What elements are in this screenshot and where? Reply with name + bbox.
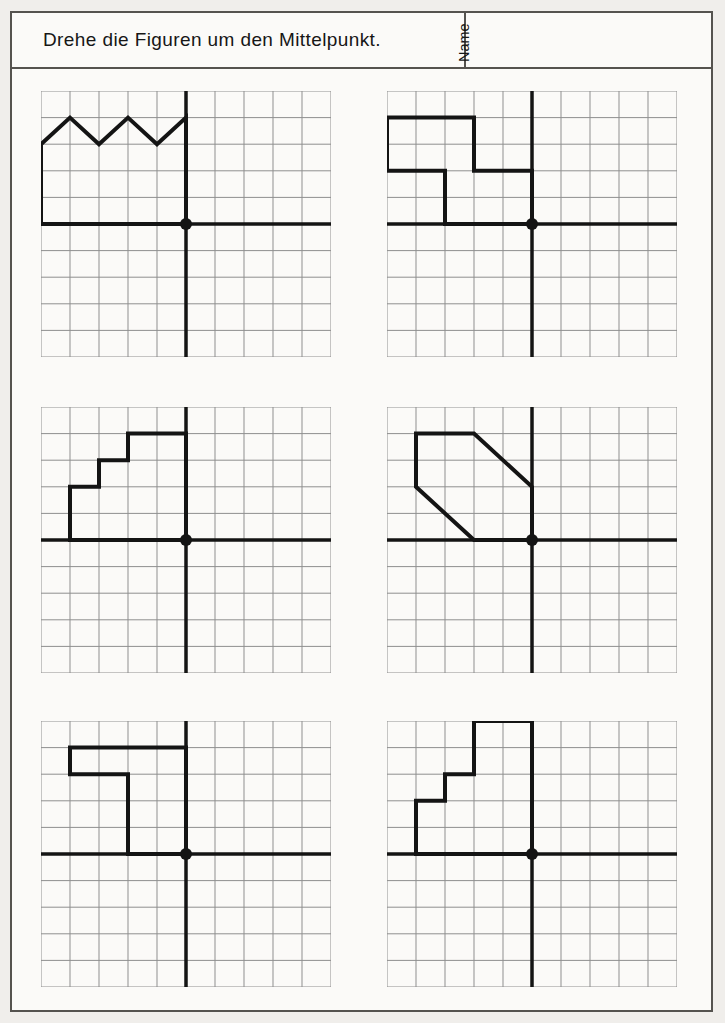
worksheet-sheet: Drehe die Figuren um den Mittelpunkt. Na… (10, 11, 713, 1012)
rotation-grid-panel-5[interactable] (41, 721, 331, 987)
rotation-grid-panel-1[interactable] (41, 91, 331, 357)
rotation-grid-panel-6[interactable] (387, 721, 677, 987)
name-field-label: Name (456, 23, 472, 62)
rotation-grid-panel-2[interactable] (387, 91, 677, 357)
worksheet-header: Drehe die Figuren um den Mittelpunkt. Na… (12, 13, 711, 69)
worksheet-title: Drehe die Figuren um den Mittelpunkt. (43, 29, 381, 51)
name-field[interactable]: Name (464, 13, 711, 67)
rotation-grid-panel-3[interactable] (41, 407, 331, 673)
worksheet-page: { "document": { "title": "Drehe die Figu… (0, 0, 725, 1023)
rotation-grid-panel-4[interactable] (387, 407, 677, 673)
